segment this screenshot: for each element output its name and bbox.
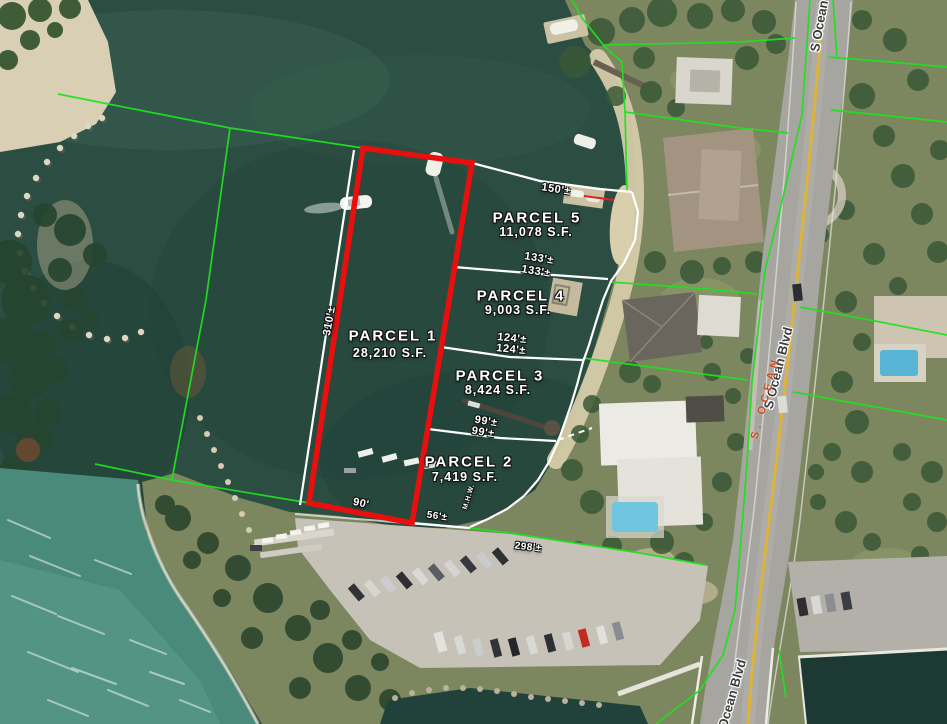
aerial-parcel-map: PARCEL 1 28,210 S.F. PARCEL 5 11,078 S.F… (0, 0, 947, 724)
aerial-imagery (0, 0, 947, 724)
